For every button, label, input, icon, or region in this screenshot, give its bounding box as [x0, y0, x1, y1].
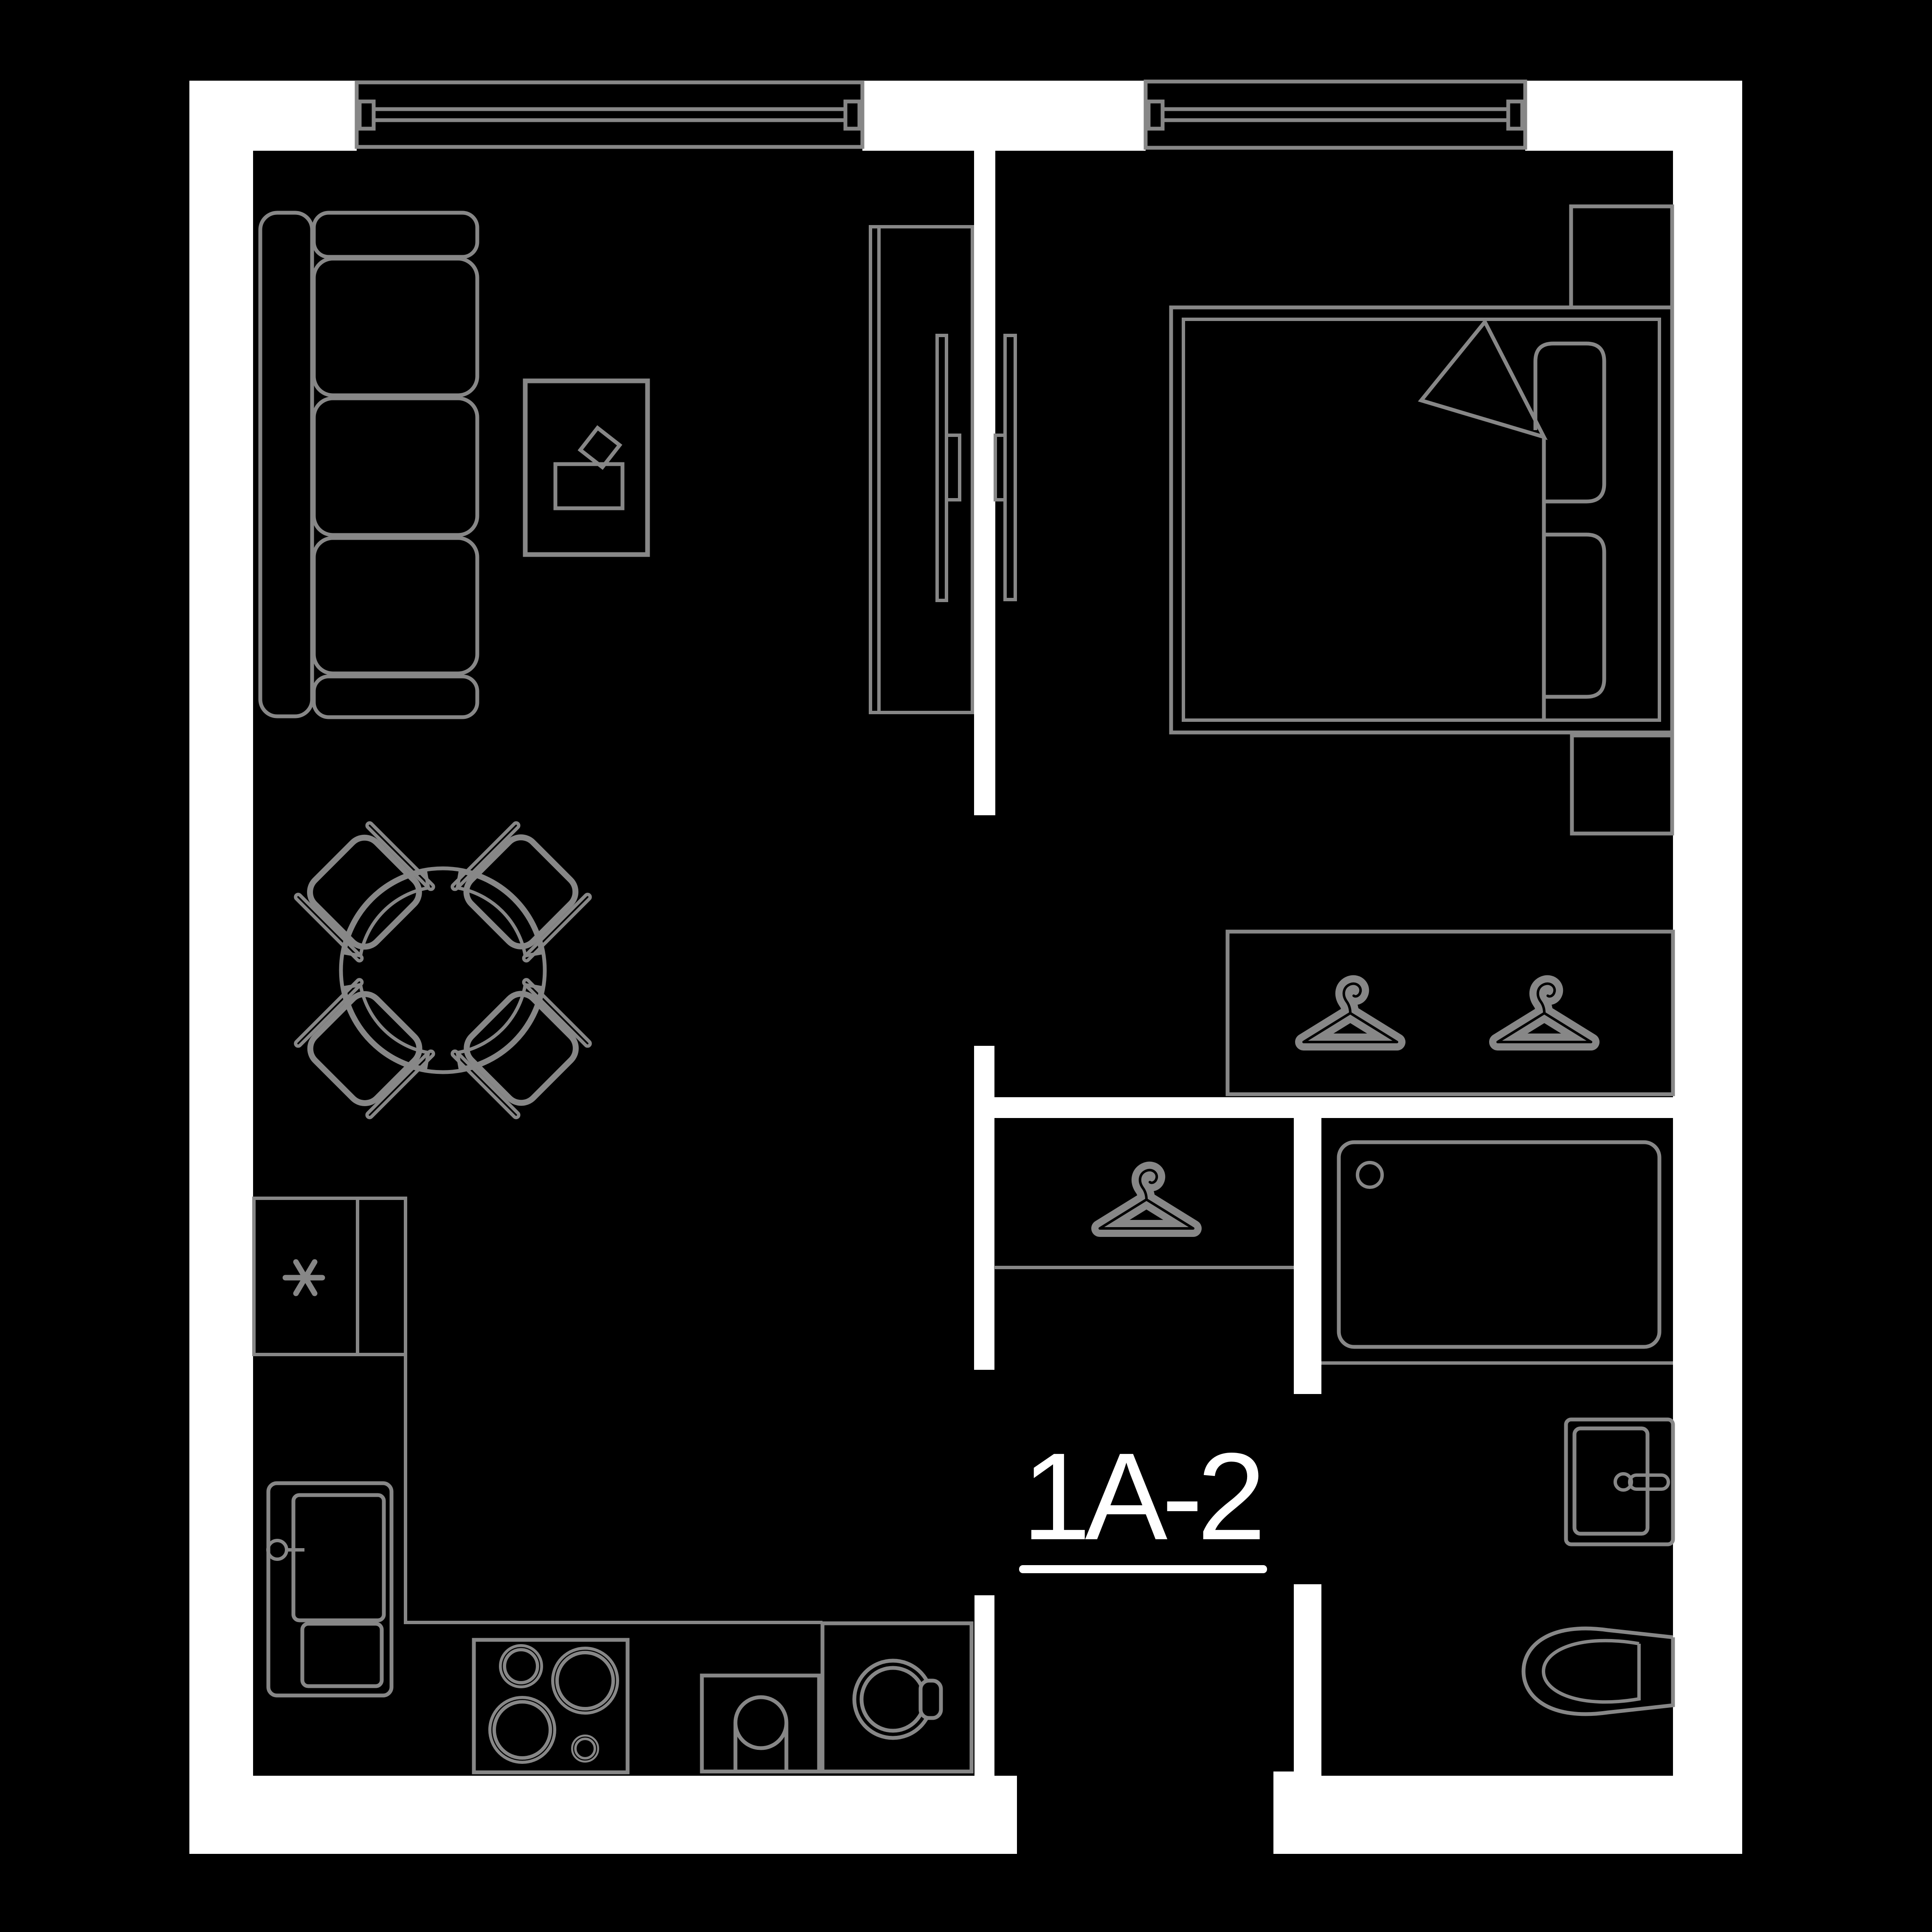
svg-text:1A-2: 1A-2 [1022, 1427, 1261, 1566]
